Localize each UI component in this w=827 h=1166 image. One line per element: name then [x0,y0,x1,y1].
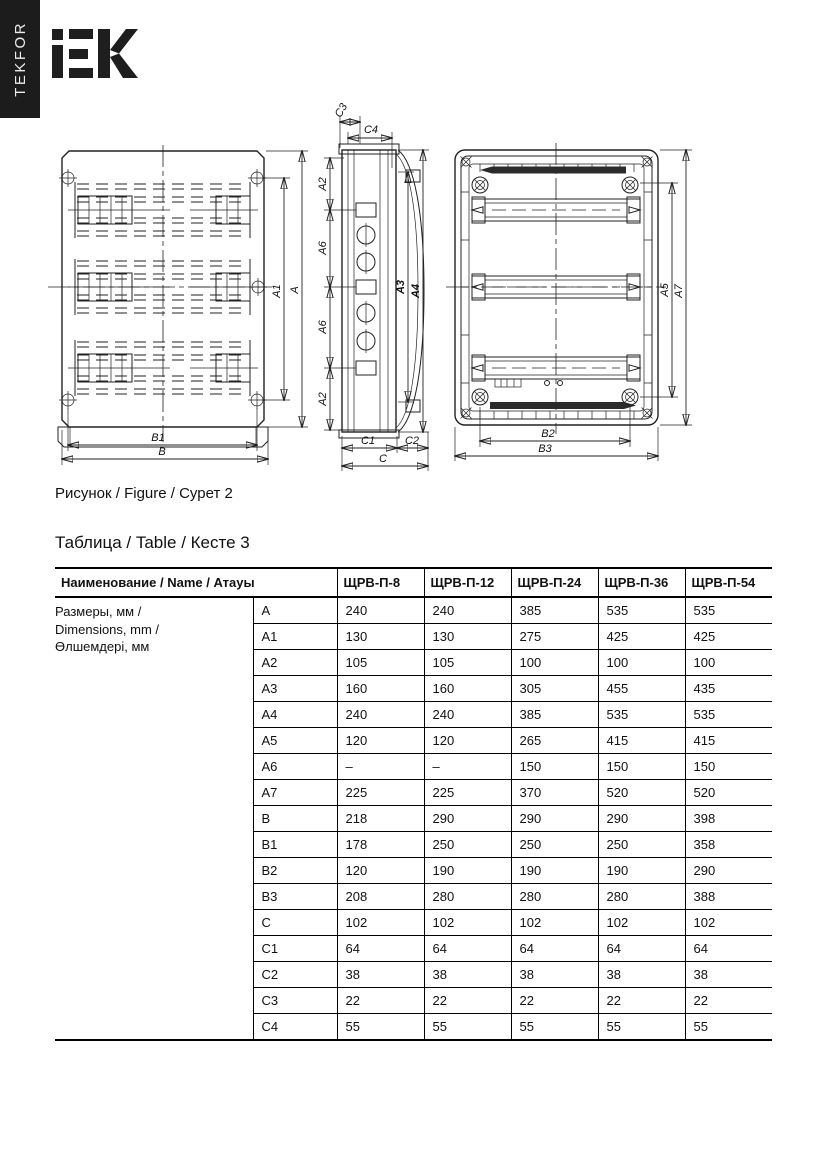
dim-value-cell: 250 [424,832,511,858]
table-body: Размеры, мм /Dimensions, mm /Өлшемдері, … [55,597,772,1040]
dim-value-cell: 100 [685,650,772,676]
catalog-page: TEKFOR [0,0,827,1166]
row-group-label-line: Өлшемдері, мм [55,638,247,656]
dim-value-cell: 225 [424,780,511,806]
dim-letter-cell: C4 [253,1014,337,1041]
dim-value-cell: 55 [685,1014,772,1041]
dim-letter-cell: B1 [253,832,337,858]
dim-value-cell: 102 [598,910,685,936]
dim-label-a: A [289,286,301,294]
dim-value-cell: 250 [598,832,685,858]
dim-label-c4: C4 [364,124,378,136]
dim-value-cell: 105 [337,650,424,676]
dim-value-cell: 102 [337,910,424,936]
dim-value-cell: 385 [511,702,598,728]
dim-letter-cell: A3 [253,676,337,702]
dim-value-cell: 290 [424,806,511,832]
dim-value-cell: 415 [685,728,772,754]
dim-value-cell: 102 [511,910,598,936]
dim-value-cell: 55 [337,1014,424,1041]
dim-value-cell: 388 [685,884,772,910]
dim-label-a6-top: A6 [317,240,329,255]
row-group-label: Размеры, мм /Dimensions, mm /Өлшемдері, … [55,597,253,1040]
dim-value-cell: 160 [424,676,511,702]
dim-value-cell: 290 [685,858,772,884]
dim-value-cell: 38 [598,962,685,988]
dim-value-cell: 130 [424,624,511,650]
dim-value-cell: – [337,754,424,780]
dim-letter-cell: A4 [253,702,337,728]
dimensions-table-grid: Наименование / Name / Атауы ЩРВ-П-8 ЩРВ-… [55,567,772,1041]
table-header-row: Наименование / Name / Атауы ЩРВ-П-8 ЩРВ-… [55,568,772,597]
dim-value-cell: 280 [511,884,598,910]
table-header-model-5: ЩРВ-П-54 [685,568,772,597]
dim-value-cell: 520 [598,780,685,806]
dim-value-cell: 398 [685,806,772,832]
dim-letter-cell: C1 [253,936,337,962]
dim-value-cell: – [424,754,511,780]
table-header-model-2: ЩРВ-П-12 [424,568,511,597]
dim-value-cell: 535 [685,702,772,728]
dim-label-a3: A3 [395,280,407,295]
iek-logo [50,29,138,79]
dim-label-a2-bottom: A2 [317,392,329,406]
dim-value-cell: 64 [511,936,598,962]
dim-label-b1: B1 [151,432,164,444]
dim-letter-cell: C3 [253,988,337,1014]
dim-label-a4: A4 [410,284,422,299]
side-view: C3 C4 A2 A6 A6 A2 A3 [317,101,429,471]
dim-value-cell: 218 [337,806,424,832]
dim-value-cell: 280 [598,884,685,910]
dim-value-cell: 535 [598,702,685,728]
dim-value-cell: 55 [424,1014,511,1041]
dim-value-cell: 240 [337,702,424,728]
dim-letter-cell: B3 [253,884,337,910]
row-group-label-line: Dimensions, mm / [55,621,247,639]
dim-value-cell: 64 [598,936,685,962]
dim-value-cell: 520 [685,780,772,806]
dim-value-cell: 425 [598,624,685,650]
dim-label-c3: C3 [333,101,351,120]
dim-value-cell: 102 [424,910,511,936]
dim-value-cell: 455 [598,676,685,702]
dim-label-b: B [158,446,165,458]
dim-letter-cell: B2 [253,858,337,884]
dim-value-cell: 225 [337,780,424,806]
dim-letter-cell: A [253,597,337,624]
dim-value-cell: 22 [598,988,685,1014]
dim-value-cell: 535 [598,597,685,624]
dim-value-cell: 415 [598,728,685,754]
figure-caption: Рисунок / Figure / Сурет 2 [55,485,233,502]
dim-value-cell: 100 [598,650,685,676]
dim-value-cell: 102 [685,910,772,936]
technical-drawing: A1 A B1 B [40,100,780,490]
table-header-model-3: ЩРВ-П-24 [511,568,598,597]
dim-label-c2: C2 [405,435,419,447]
dim-value-cell: 22 [337,988,424,1014]
dim-value-cell: 55 [598,1014,685,1041]
dim-value-cell: 150 [685,754,772,780]
dim-value-cell: 38 [337,962,424,988]
front-view: A1 A B1 B [48,145,308,465]
dim-value-cell: 105 [424,650,511,676]
dim-value-cell: 535 [685,597,772,624]
dim-label-a1: A1 [271,284,283,298]
dim-value-cell: 64 [424,936,511,962]
dim-letter-cell: A2 [253,650,337,676]
dim-label-a7: A7 [673,283,685,298]
dim-letter-cell: A7 [253,780,337,806]
table-header-model-1: ЩРВ-П-8 [337,568,424,597]
dim-label-b2: B2 [541,428,554,440]
dim-value-cell: 385 [511,597,598,624]
dim-value-cell: 100 [511,650,598,676]
tekfor-series-label: TEKFOR [12,21,29,97]
dim-letter-cell: A1 [253,624,337,650]
dim-letter-cell: C [253,910,337,936]
dim-value-cell: 130 [337,624,424,650]
dim-value-cell: 160 [337,676,424,702]
dim-value-cell: 120 [424,728,511,754]
dim-value-cell: 290 [511,806,598,832]
dim-value-cell: 305 [511,676,598,702]
dim-value-cell: 38 [511,962,598,988]
dim-value-cell: 240 [424,702,511,728]
dim-value-cell: 280 [424,884,511,910]
dim-label-b3: B3 [538,443,552,455]
dim-letter-cell: B [253,806,337,832]
dim-value-cell: 190 [598,858,685,884]
dim-value-cell: 64 [337,936,424,962]
dim-value-cell: 370 [511,780,598,806]
dim-label-c1: C1 [361,435,375,447]
dim-value-cell: 290 [598,806,685,832]
iek-mark [495,379,521,387]
table-header-model-4: ЩРВ-П-36 [598,568,685,597]
dim-value-cell: 190 [424,858,511,884]
dim-value-cell: 22 [511,988,598,1014]
table-header-name: Наименование / Name / Атауы [55,568,337,597]
dim-label-a6-bottom: A6 [317,319,329,334]
dim-label-c: C [379,453,387,465]
dim-label-a5: A5 [659,282,671,297]
dim-value-cell: 22 [424,988,511,1014]
dim-label-a2-top: A2 [317,177,329,191]
dim-value-cell: 275 [511,624,598,650]
dim-value-cell: 120 [337,728,424,754]
dim-value-cell: 22 [685,988,772,1014]
dim-value-cell: 178 [337,832,424,858]
dim-value-cell: 208 [337,884,424,910]
dim-value-cell: 120 [337,858,424,884]
dim-value-cell: 150 [511,754,598,780]
back-view: A5 A7 B2 B3 [446,143,692,461]
dim-value-cell: 250 [511,832,598,858]
dim-value-cell: 265 [511,728,598,754]
dim-value-cell: 190 [511,858,598,884]
dim-value-cell: 425 [685,624,772,650]
dim-letter-cell: A6 [253,754,337,780]
dim-value-cell: 38 [424,962,511,988]
dim-value-cell: 64 [685,936,772,962]
row-group-label-line: Размеры, мм / [55,603,247,621]
dim-value-cell: 240 [337,597,424,624]
dimensions-table: Наименование / Name / Атауы ЩРВ-П-8 ЩРВ-… [55,567,772,1041]
dim-value-cell: 55 [511,1014,598,1041]
tekfor-series-bar: TEKFOR [0,0,40,118]
dim-value-cell: 358 [685,832,772,858]
dim-letter-cell: A5 [253,728,337,754]
table-row: Размеры, мм /Dimensions, mm /Өлшемдері, … [55,597,772,624]
dim-value-cell: 38 [685,962,772,988]
dim-value-cell: 435 [685,676,772,702]
dim-value-cell: 240 [424,597,511,624]
dim-letter-cell: C2 [253,962,337,988]
table-title: Таблица / Table / Кесте 3 [55,533,250,553]
dim-value-cell: 150 [598,754,685,780]
